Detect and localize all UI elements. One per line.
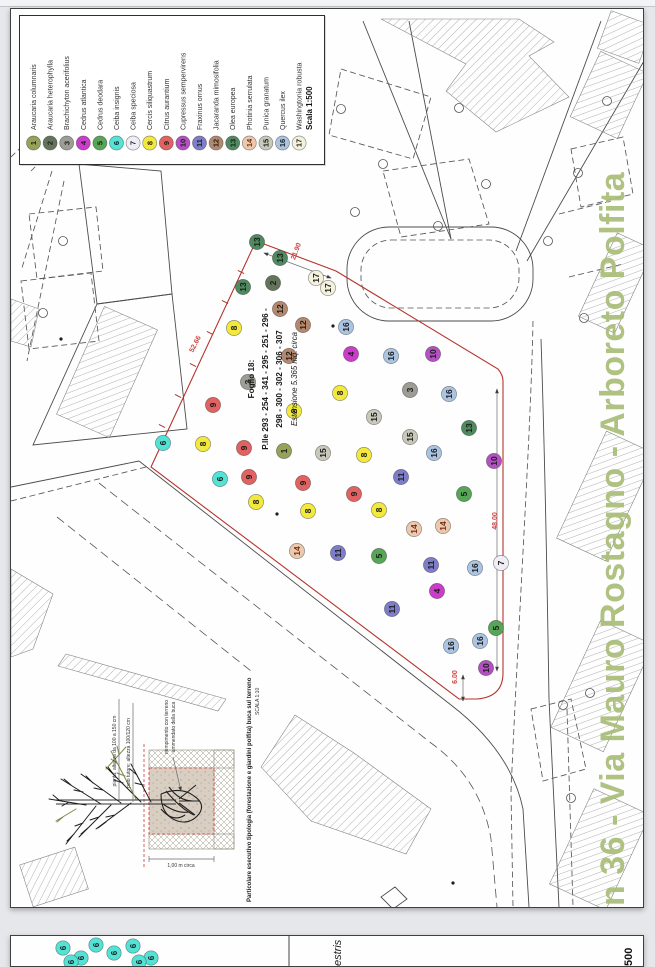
survey-boundary	[151, 241, 503, 701]
legend-species-name: Cercis siliquastrum	[147, 71, 154, 130]
tree-marker: 13	[461, 420, 476, 435]
tree-marker: 17	[292, 136, 306, 150]
legend-species-name: Jacaranda mimosifolia	[214, 60, 221, 130]
tree-marker-number: 4	[432, 588, 442, 593]
tree-marker: 15	[402, 429, 417, 444]
tree-marker: 6	[64, 955, 78, 966]
tree-marker: 9	[295, 475, 310, 490]
tree-marker-number: 6	[158, 440, 168, 445]
tree-marker-number: 2	[268, 280, 278, 285]
tree-marker: 8	[371, 502, 386, 517]
tree-marker-number: 14	[409, 524, 419, 534]
legend-species-name: Quercus ilex	[280, 91, 287, 130]
tree-marker: 8	[143, 136, 157, 150]
tree-marker: 16	[338, 319, 353, 334]
tree-marker: 14	[242, 136, 256, 150]
legend-species-name: Brachichyton acerifolius	[64, 56, 71, 130]
tree-marker: 8	[226, 320, 241, 335]
detail-label-3b: ammendato della buca	[171, 701, 177, 752]
tree-marker-number: 16	[341, 322, 351, 332]
tree-marker-number: 8	[251, 499, 261, 504]
parcel-label-foglio: Foglio 18:	[247, 360, 256, 399]
tree-marker-number: 10	[179, 139, 188, 147]
dim-48-00: 48.00	[492, 512, 499, 530]
tree-marker: 6	[89, 938, 103, 952]
tree-marker-number: 11	[396, 472, 406, 481]
legend-scale-label: Scala 1:500	[305, 86, 314, 130]
tree-markers-layer: 1313132171712128164121610383169815131568…	[155, 234, 508, 675]
tree-marker-number: 7	[129, 141, 138, 145]
tree-marker-number: 12	[212, 139, 221, 147]
tree-marker: 12	[295, 317, 310, 332]
tree-marker-number: 9	[244, 474, 254, 479]
tree-marker-number: 12	[298, 320, 308, 330]
legend-species-name: Citrus aurantium	[164, 78, 171, 130]
tree-marker-number: 9	[239, 445, 249, 450]
tree-marker-number: 8	[198, 441, 208, 446]
tree-marker-number: 6	[129, 943, 138, 948]
tree-marker-number: 15	[369, 412, 379, 422]
tree-marker: 5	[488, 620, 503, 635]
tree-marker: 16	[443, 638, 458, 653]
tree-marker-number: 1	[279, 448, 289, 453]
tree-marker-number: 5	[491, 625, 501, 630]
legend-species-name: Cedrus atlantica	[81, 79, 88, 130]
tree-marker: 1	[276, 443, 291, 458]
detail-caption-scale: SCALA 1:10	[255, 688, 261, 715]
tree-marker-number: 16	[278, 139, 287, 147]
tree-marker: 10	[425, 346, 440, 361]
legend-species-name: Washingtonia robusta	[297, 62, 304, 130]
tree-marker-number: 6	[112, 141, 121, 145]
tree-marker: 9	[241, 469, 256, 484]
tree-marker: 14	[289, 543, 304, 558]
tree-marker-number: 6	[215, 476, 225, 481]
tree-marker: 13	[249, 234, 264, 249]
dim-52-66: 52.66	[189, 335, 203, 354]
legend-graphic: 1Araucaria columnaris2Araucaria heteroph…	[20, 16, 321, 161]
parcel-label-plle-1: P.lle 293 - 254 - 341 - 295 - 251 - 296 …	[261, 308, 270, 450]
tree-marker: 11	[384, 601, 399, 616]
tree-marker: 16	[383, 348, 398, 363]
tree-marker-number: 11	[195, 139, 204, 147]
tree-marker: 17	[320, 280, 335, 295]
tree-marker: 16	[467, 560, 482, 575]
next-sheet-scale-fragment: 500	[623, 948, 635, 966]
tree-marker: 5	[371, 548, 386, 563]
tree-marker-number: 1	[29, 141, 38, 145]
tree-marker: 11	[423, 557, 438, 572]
tree-marker-number: 14	[292, 546, 302, 556]
tree-marker: 6	[126, 939, 140, 953]
tree-marker-number: 8	[229, 325, 239, 330]
next-sheet-species-fragment: estris	[332, 939, 344, 966]
tree-marker: 10	[478, 660, 493, 675]
legend-species-name: Ceiba insignis	[114, 86, 121, 130]
tree-marker-number: 15	[318, 448, 328, 458]
tree-marker-number: 12	[275, 304, 285, 314]
tree-marker-number: 10	[428, 349, 438, 359]
tree-marker-number: 11	[426, 560, 436, 569]
tree-marker: 2	[265, 275, 280, 290]
legend-species-name: Olea europea	[230, 87, 237, 130]
tree-marker-number: 4	[346, 351, 356, 356]
tree-marker: 16	[472, 633, 487, 648]
dim-6-00: 6.00	[452, 670, 459, 684]
tree-marker: 16	[426, 445, 441, 460]
dimension-labels: 52.66 21.90 48.00 6.00	[189, 242, 499, 684]
tree-marker-number: 16	[470, 563, 480, 573]
tree-marker: 14	[435, 518, 450, 533]
tree-marker: 16	[276, 136, 290, 150]
tree-marker-number: 6	[92, 942, 101, 947]
tree-marker-number: 17	[295, 139, 304, 147]
tree-marker-number: 6	[147, 955, 156, 960]
tree-marker: 8	[195, 436, 210, 451]
tree-marker-number: 13	[275, 253, 285, 263]
tree-marker: 6	[155, 435, 170, 450]
tree-marker-number: 11	[387, 604, 397, 613]
tree-marker-number: 9	[162, 141, 171, 145]
tree-marker: 5	[456, 486, 471, 501]
detail-label-1: pianta: altezza da 100 a 150 cm	[112, 716, 118, 787]
tree-marker: 9	[236, 440, 251, 455]
tree-marker: 6	[56, 941, 70, 955]
parcel-label-plle-2: 298 - 300 - 302 - 306 - 307	[275, 330, 284, 428]
detail-tree-branches-green	[56, 746, 136, 822]
tree-marker-number: 5	[459, 491, 469, 496]
tree-marker-number: 9	[298, 480, 308, 485]
tree-marker-number: 17	[311, 273, 321, 283]
tree-marker: 15	[366, 409, 381, 424]
tree-marker-number: 8	[359, 452, 369, 457]
tree-marker: 1	[27, 136, 41, 150]
tree-marker: 13	[235, 279, 250, 294]
tree-marker-number: 8	[374, 507, 384, 512]
detail-label-2: palo tutore: altezza 100/120 cm	[126, 718, 132, 788]
tree-marker-number: 10	[481, 663, 491, 673]
tree-marker-number: 16	[429, 448, 439, 458]
tree-marker: 8	[300, 503, 315, 518]
tree-marker: 11	[330, 545, 345, 560]
tree-marker: 4	[76, 136, 90, 150]
tree-marker-number: 13	[464, 423, 474, 433]
tree-marker: 4	[343, 346, 358, 361]
tree-marker-number: 10	[489, 456, 499, 466]
page: { "title": {"text": "n 36 - Via Mauro Ro…	[0, 0, 655, 960]
tree-marker: 8	[248, 494, 263, 509]
tree-marker: 6	[110, 136, 124, 150]
tree-marker-number: 14	[438, 521, 448, 531]
tree-marker-number: 5	[374, 553, 384, 558]
legend-species-name: Araucaria columnaris	[31, 64, 38, 130]
tree-marker: 3	[60, 136, 74, 150]
drawing-sheet-main: 52.66 21.90 48.00 6.00 13131321717121281…	[10, 8, 644, 908]
tree-marker-number: 6	[77, 955, 86, 960]
tree-marker-number: 8	[335, 390, 345, 395]
tree-marker-number: 5	[96, 141, 105, 145]
tree-marker-number: 6	[110, 950, 119, 955]
parcel-label-area: Estensione 5.365 mq. circa	[290, 331, 299, 426]
tree-marker: 8	[356, 447, 371, 462]
tree-marker-number: 9	[349, 491, 359, 496]
tree-marker: 15	[315, 445, 330, 460]
tree-marker: 5	[93, 136, 107, 150]
tree-marker-number: 11	[333, 548, 343, 557]
tree-marker: 9	[346, 486, 361, 501]
tree-marker-number: 16	[386, 351, 396, 361]
tree-marker-number: 16	[475, 636, 485, 646]
tree-marker-number: 16	[444, 389, 454, 399]
page-top-edge	[0, 0, 655, 7]
next-sheet-graphic: 66666666 estris 500	[11, 936, 643, 966]
legend-species-name: Fraxinus ornus	[197, 83, 204, 130]
legend-species-name: Ceiba speciosa	[131, 82, 138, 130]
tree-marker-number: 8	[145, 141, 154, 145]
tree-marker-number: 6	[59, 945, 68, 950]
tree-marker: 4	[429, 583, 444, 598]
next-sheet-tree-markers: 66666666	[56, 938, 158, 966]
tree-marker: 6	[107, 946, 121, 960]
legend-items: 1Araucaria columnaris2Araucaria heteroph…	[27, 52, 307, 150]
parcel-label: Foglio 18: P.lle 293 - 254 - 341 - 295 -…	[247, 308, 299, 450]
legend-species-name: Cedrus deodara	[97, 80, 104, 130]
legend-species-name: Cupressus sempervirens	[180, 52, 187, 130]
tree-marker: 3	[402, 382, 417, 397]
tree-marker: 14	[406, 521, 421, 536]
tree-marker: 9	[159, 136, 173, 150]
sheet-title: n 36 - Via Mauro Rostagno - Arboreto Pol…	[594, 66, 633, 906]
tree-marker: 6	[212, 471, 227, 486]
tree-marker: 17	[308, 270, 323, 285]
legend-species-name: Photinia serrulata	[247, 75, 254, 130]
tree-marker: 15	[259, 136, 273, 150]
tree-marker-number: 13	[252, 237, 262, 247]
tree-marker-number: 16	[446, 641, 456, 651]
tree-marker: 11	[393, 469, 408, 484]
drawing-sheet-next: 66666666 estris 500	[10, 935, 644, 967]
legend-species-name: Araucaria heterophylla	[48, 60, 55, 130]
tree-marker-number: 2	[46, 141, 55, 145]
tree-marker-number: 7	[496, 560, 506, 565]
tree-marker-number: 9	[208, 402, 218, 407]
tree-marker-number: 15	[405, 432, 415, 442]
tree-marker-number: 14	[245, 138, 254, 147]
tree-marker-number: 15	[262, 139, 271, 147]
legend-species-name: Punica granatum	[263, 77, 270, 130]
tree-marker: 7	[493, 555, 508, 570]
tree-marker: 7	[126, 136, 140, 150]
tree-marker: 12	[209, 136, 223, 150]
tree-marker-number: 13	[238, 282, 248, 292]
legend: 1Araucaria columnaris2Araucaria heteroph…	[19, 15, 325, 165]
tree-marker: 16	[441, 386, 456, 401]
detail-dim-bottom: 1,00 m circa	[167, 863, 194, 869]
tree-marker-number: 3	[405, 387, 415, 392]
tree-marker: 6	[132, 955, 146, 966]
tree-marker: 12	[272, 301, 287, 316]
tree-marker: 10	[176, 136, 190, 150]
tree-marker-number: 8	[303, 508, 313, 513]
tree-marker: 10	[486, 453, 501, 468]
tree-marker: 13	[226, 136, 240, 150]
tree-marker: 13	[272, 250, 287, 265]
tree-marker: 11	[193, 136, 207, 150]
detail-caption: Particolare esecutivo tipologia (foresta…	[247, 677, 253, 902]
tree-marker: 2	[43, 136, 57, 150]
tree-marker: 8	[332, 385, 347, 400]
tree-marker-number: 17	[323, 283, 333, 293]
tree-marker: 9	[205, 397, 220, 412]
tree-marker-number: 3	[62, 141, 71, 145]
detail-label-3a: riempimento con terreno	[164, 700, 170, 754]
tree-marker-number: 13	[228, 139, 237, 147]
